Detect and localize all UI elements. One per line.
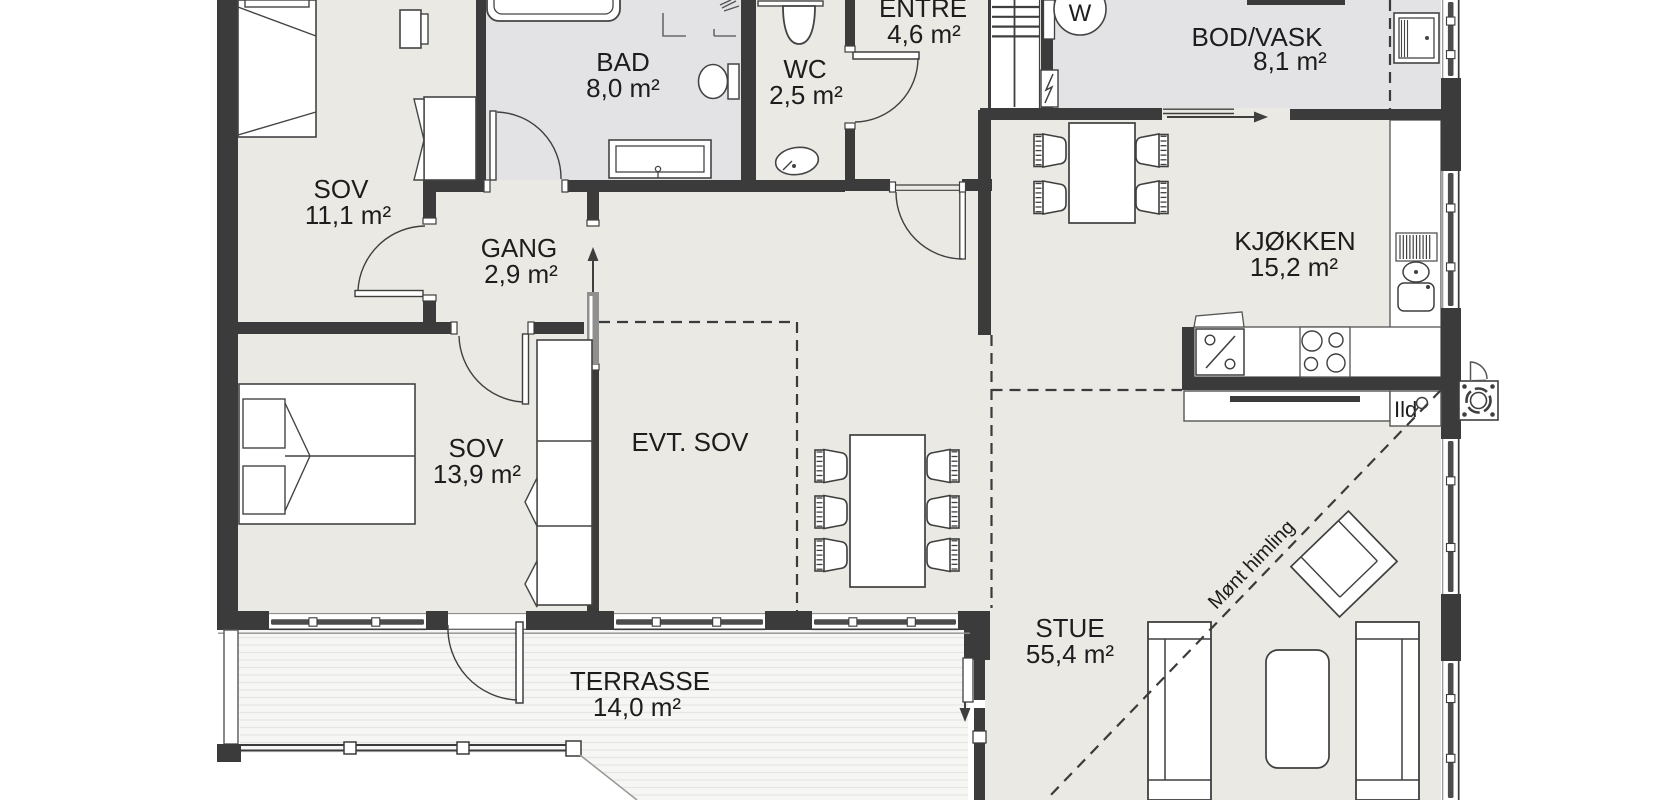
svg-text:EVT. SOV: EVT. SOV [631,427,749,457]
svg-text:8,1 m²: 8,1 m² [1253,46,1327,76]
svg-text:W: W [1069,0,1092,27]
svg-text:15,2 m²: 15,2 m² [1250,252,1338,282]
svg-text:55,4 m²: 55,4 m² [1026,639,1114,669]
svg-text:2,9 m²: 2,9 m² [484,259,558,289]
svg-text:14,0 m²: 14,0 m² [593,692,681,722]
svg-text:4,6 m²: 4,6 m² [887,19,961,49]
svg-text:8,0 m²: 8,0 m² [586,73,660,103]
svg-text:11,1 m²: 11,1 m² [305,200,392,230]
svg-text:2,5 m²: 2,5 m² [769,80,843,110]
svg-text:13,9 m²: 13,9 m² [433,459,521,489]
